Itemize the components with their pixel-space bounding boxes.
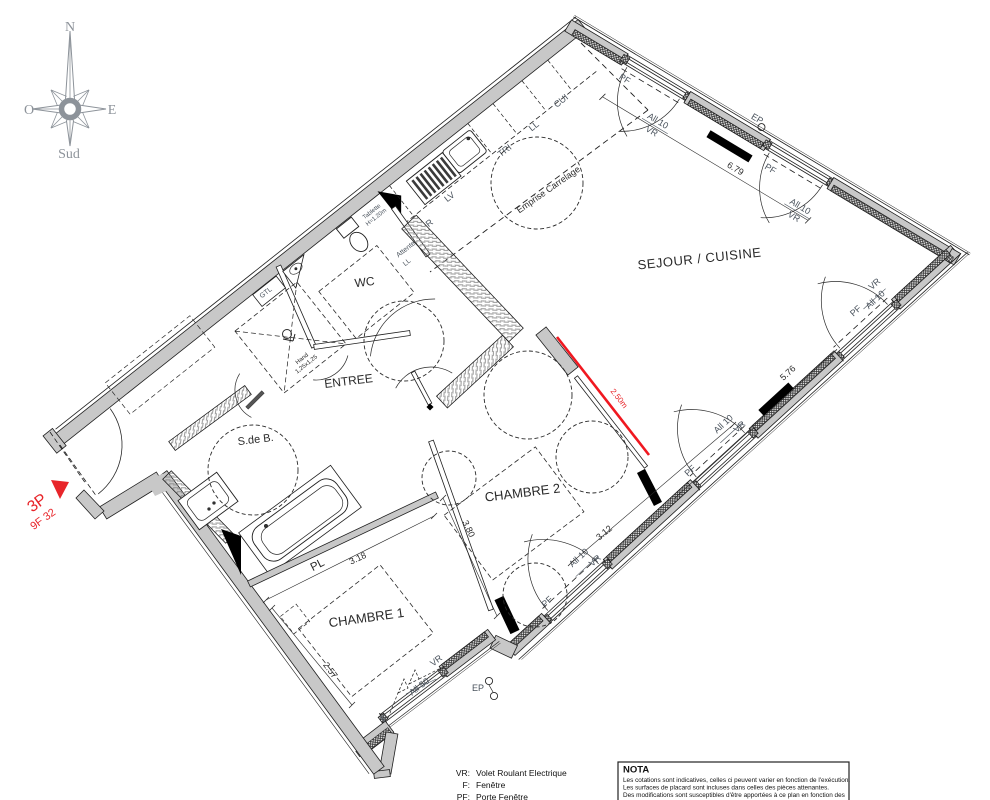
svg-text:Porte Fenêtre: Porte Fenêtre [476,792,528,800]
svg-text:Sud: Sud [58,147,80,162]
svg-text:EP: EP [472,683,484,693]
svg-text:Des modifications sont suscept: Des modifications sont susceptibles d'êt… [623,792,845,799]
svg-text:E: E [108,103,117,118]
svg-text:N: N [65,20,75,35]
svg-text:Les surfaces de placard sont i: Les surfaces de placard sont incluses da… [623,785,829,792]
svg-text:Les cotations sont indicatives: Les cotations sont indicatives, celles c… [623,777,850,784]
svg-text:PF:: PF: [457,792,470,800]
svg-text:O: O [24,103,34,118]
svg-text:VR:: VR: [456,768,470,778]
svg-text:Volet Roulant Electrique: Volet Roulant Electrique [476,768,567,778]
svg-text:F:: F: [462,780,470,790]
svg-text:Fenêtre: Fenêtre [476,780,506,790]
svg-text:WC: WC [354,274,376,290]
svg-text:NOTA: NOTA [623,765,649,776]
